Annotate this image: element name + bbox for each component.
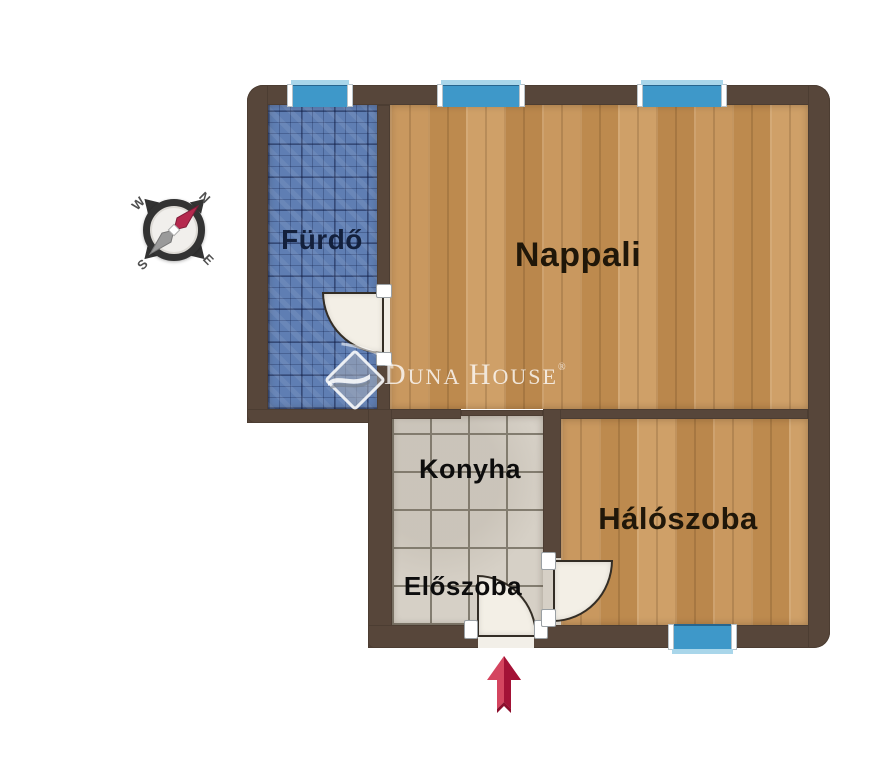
window-frame-cap xyxy=(519,84,525,107)
door-frame-tab xyxy=(541,609,556,627)
window-frame-cap xyxy=(347,84,353,107)
window-frame-cap xyxy=(721,84,727,107)
floorplan-canvas: W N S E xyxy=(0,0,882,768)
brand-word1-initial: D xyxy=(384,358,408,391)
window-frame-cap xyxy=(731,624,737,650)
brand-watermark: DUNA HOUSE® xyxy=(322,352,572,410)
room-label-living-room: Nappali xyxy=(478,236,678,275)
wall-living-kitchen-threshold xyxy=(461,410,543,416)
door-frame-tab xyxy=(464,620,478,639)
brand-word1-rest: UNA xyxy=(408,364,462,389)
window xyxy=(437,84,525,107)
brand-word2-initial: H xyxy=(469,358,493,391)
door-frame-tab xyxy=(376,284,392,298)
window xyxy=(668,624,737,650)
door-frame-tab xyxy=(541,552,556,570)
window-sill xyxy=(641,80,723,85)
window-glass xyxy=(443,84,519,107)
window-sill xyxy=(291,80,349,85)
wall-bottom xyxy=(368,625,830,648)
window-sill xyxy=(672,649,733,654)
wall-hall-bedroom xyxy=(543,409,561,558)
wall-kitchen-left xyxy=(368,409,392,648)
wall-living-kitchen-left xyxy=(390,409,461,419)
window-glass xyxy=(643,84,721,107)
room-label-hall: Előszoba xyxy=(383,571,543,602)
compass-rose-icon: W N S E xyxy=(128,184,220,276)
brand-name: DUNA HOUSE® xyxy=(384,358,568,392)
brand-wave-icon xyxy=(324,366,374,394)
wall-right xyxy=(808,85,830,648)
entrance-arrow-icon xyxy=(486,656,522,714)
window xyxy=(287,84,353,107)
room-label-bedroom: Hálószoba xyxy=(578,501,778,537)
room-label-bathroom: Fürdő xyxy=(252,224,392,256)
window-sill xyxy=(441,80,521,85)
room-label-kitchen: Konyha xyxy=(395,454,545,485)
wall-living-bedroom xyxy=(543,409,808,419)
brand-word2-rest: OUSE xyxy=(493,364,558,389)
registered-mark: ® xyxy=(558,362,568,373)
window-glass xyxy=(674,624,731,650)
window xyxy=(637,84,727,107)
window-glass xyxy=(293,84,347,107)
